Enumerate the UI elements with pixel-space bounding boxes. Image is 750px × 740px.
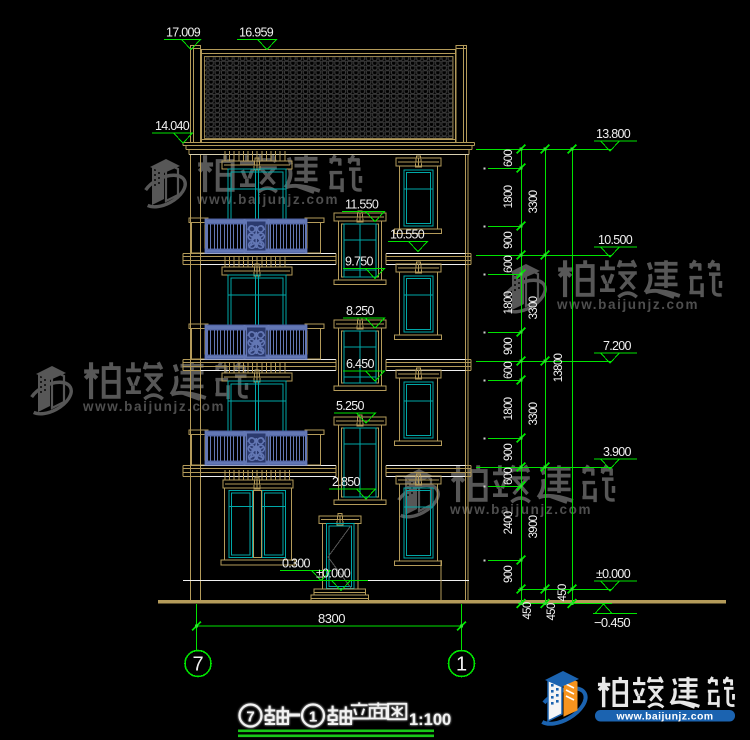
svg-text:10.550: 10.550 [390,228,425,242]
svg-text:1: 1 [456,654,467,676]
svg-text:7.200: 7.200 [603,339,632,353]
svg-text:450: 450 [522,602,534,619]
svg-text:450: 450 [557,584,569,601]
svg-text:450: 450 [546,603,558,620]
svg-text:600: 600 [503,256,515,273]
svg-text:8300: 8300 [318,611,345,626]
svg-text:1800: 1800 [503,185,515,208]
svg-text:9.750: 9.750 [345,255,374,269]
svg-text:1800: 1800 [503,397,515,420]
svg-text:6.450: 6.450 [346,357,375,371]
svg-text:5.250: 5.250 [336,399,365,413]
svg-text:1:100: 1:100 [409,711,451,729]
svg-text:3300: 3300 [528,190,540,213]
svg-text:2.850: 2.850 [332,475,361,489]
svg-text:17.009: 17.009 [166,26,201,40]
svg-text:600: 600 [503,150,515,167]
svg-text:±0.000: ±0.000 [316,567,351,581]
svg-text:16.959: 16.959 [239,26,274,40]
svg-text:900: 900 [503,444,515,461]
svg-text:900: 900 [503,338,515,355]
svg-text:±0.000: ±0.000 [596,567,631,581]
svg-text:1: 1 [309,709,317,726]
svg-text:www.baijunjz.com: www.baijunjz.com [82,399,225,414]
svg-text:−0.450: −0.450 [594,615,630,630]
svg-text:7: 7 [192,654,203,676]
svg-text:900: 900 [503,232,515,249]
svg-text:600: 600 [503,468,515,485]
svg-text:8.250: 8.250 [346,304,375,318]
svg-text:3.900: 3.900 [603,445,632,459]
svg-text:1800: 1800 [503,291,515,314]
svg-text:www.baijunjz.com: www.baijunjz.com [449,502,592,517]
svg-text:www.baijunjz.com: www.baijunjz.com [196,192,339,207]
svg-text:0.300: 0.300 [282,557,311,571]
svg-text:7: 7 [246,709,254,726]
svg-text:www.baijunjz.com: www.baijunjz.com [615,711,713,723]
svg-text:600: 600 [503,362,515,379]
svg-text:3300: 3300 [528,296,540,319]
svg-text:900: 900 [503,566,515,583]
svg-text:3900: 3900 [528,515,540,538]
svg-text:3300: 3300 [528,402,540,425]
svg-text:www.baijunjz.com: www.baijunjz.com [556,297,699,312]
svg-text:10.500: 10.500 [598,233,633,247]
svg-text:13800: 13800 [553,353,565,382]
svg-text:13.800: 13.800 [596,127,631,141]
svg-text:2400: 2400 [503,511,515,534]
svg-text:11.550: 11.550 [345,198,379,212]
svg-text:14.040: 14.040 [155,119,190,133]
